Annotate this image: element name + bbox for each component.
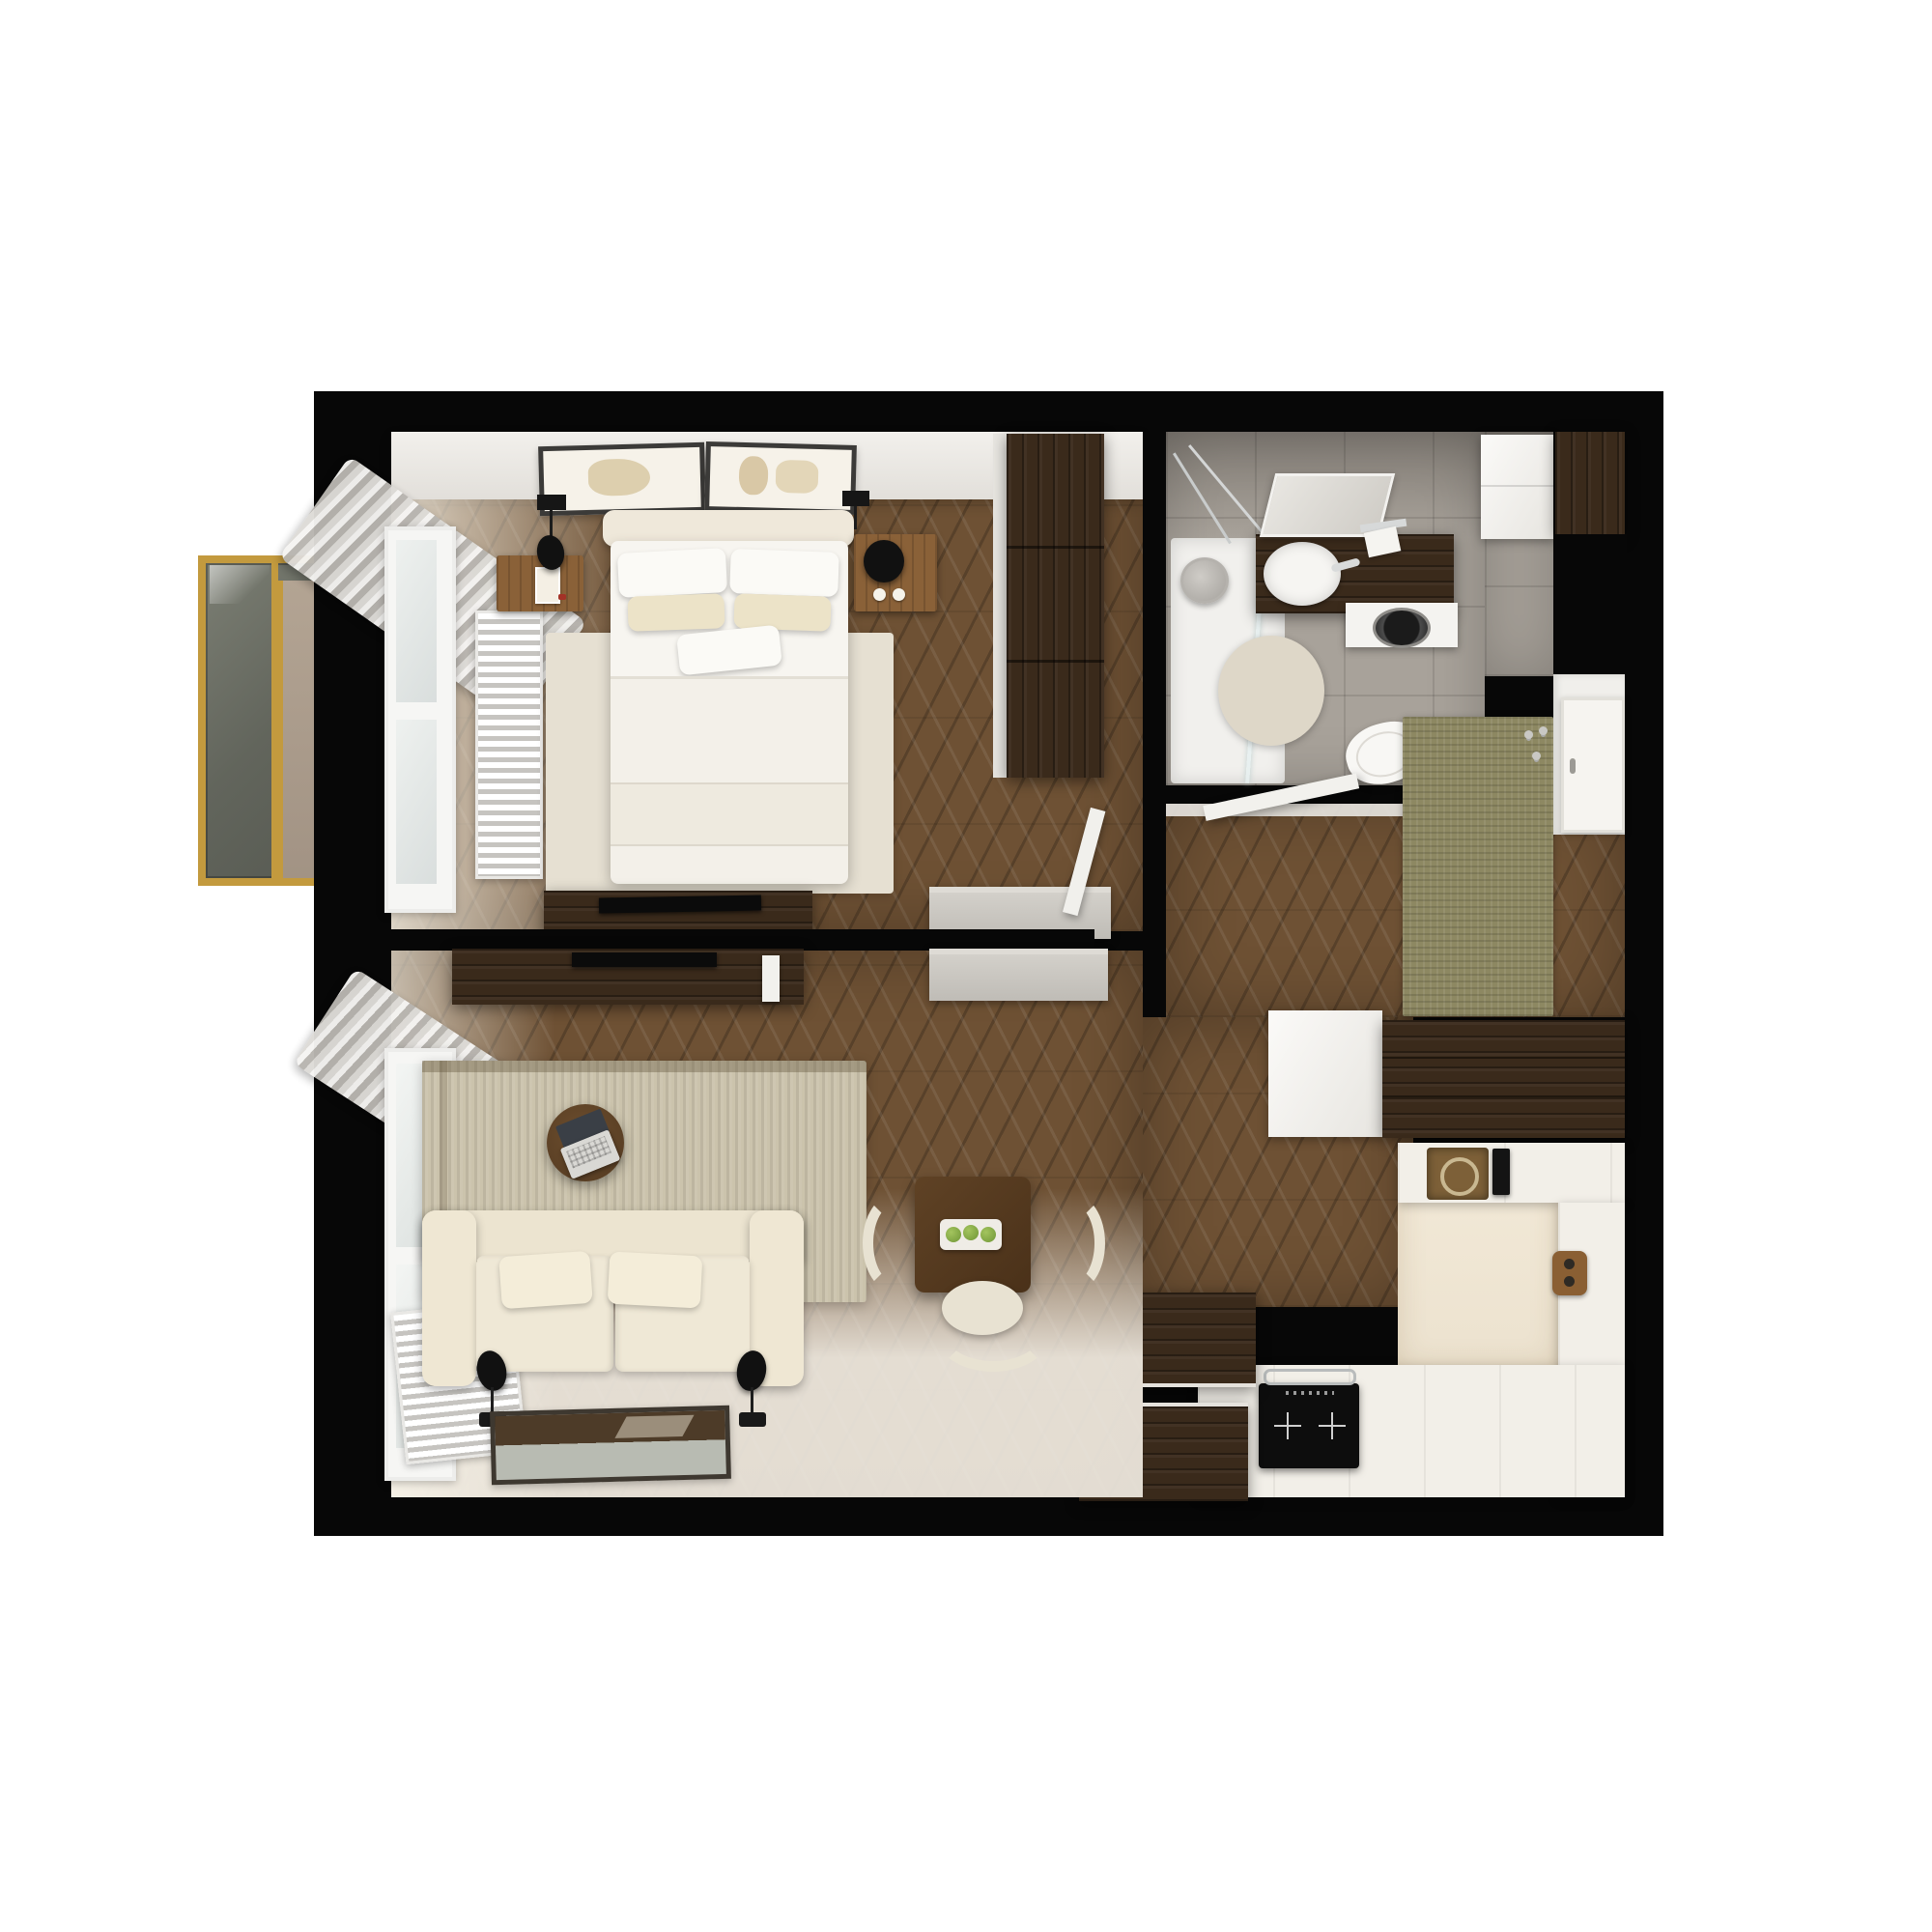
hob-control-dots xyxy=(1286,1391,1334,1395)
bathroom-round-rug xyxy=(1218,636,1324,746)
coat-hook xyxy=(1539,726,1548,735)
nightstand-red-object xyxy=(558,594,566,600)
cabinet-groove xyxy=(1382,1095,1625,1097)
hall-floor xyxy=(1166,804,1625,1017)
apple xyxy=(946,1227,961,1242)
kitchen-counter-bottom xyxy=(1198,1365,1625,1497)
dining-chair-left xyxy=(863,1194,926,1293)
bed-mattress xyxy=(611,541,848,881)
bedroom-radiator xyxy=(475,611,543,879)
media-device-white xyxy=(762,955,780,1002)
art-abstract-shape xyxy=(587,458,650,497)
bathroom-vanity-counter xyxy=(1256,534,1454,613)
cabinet-groove xyxy=(1382,1057,1625,1059)
kitchen-counter-top-run xyxy=(1398,1143,1625,1203)
bed-accent-pillow xyxy=(627,593,724,631)
dining-table xyxy=(915,1177,1031,1293)
board-knob xyxy=(1564,1276,1575,1287)
wall-art-frame-2 xyxy=(704,441,857,515)
living-tv-console xyxy=(452,949,804,1005)
bed-accent-pillow xyxy=(733,593,831,631)
steel-towel-rail xyxy=(1264,1369,1356,1385)
bathroom-cabinet-dark xyxy=(1555,432,1625,534)
front-door-handle xyxy=(1570,758,1576,774)
washer-drum xyxy=(1373,608,1431,648)
glazing-mullion xyxy=(271,563,278,878)
apple xyxy=(980,1227,996,1242)
coat-hook xyxy=(1524,730,1533,739)
hob-zone-cross xyxy=(1319,1412,1346,1439)
sconce-right-plate xyxy=(842,491,869,506)
bathroom-cabinet-white xyxy=(1481,435,1553,539)
kitchen-faucet-black xyxy=(1492,1149,1510,1195)
dining-chair-right xyxy=(1041,1194,1105,1293)
wall-bedroom-living xyxy=(391,929,1094,951)
bed-pillow xyxy=(617,548,727,598)
wall-vertical-core xyxy=(1143,432,1166,1017)
wardrobe-seam xyxy=(1007,660,1104,663)
bed-duvet-fold xyxy=(611,782,848,846)
cabinet-seam xyxy=(1481,485,1553,487)
mat-highlight xyxy=(614,1415,694,1438)
glazing-side-pane xyxy=(278,581,319,878)
entry-green-rug xyxy=(1403,717,1553,1016)
bed-duvet xyxy=(611,676,848,884)
rug-edge-band xyxy=(422,1061,867,1072)
bedroom-media-bench xyxy=(544,891,812,933)
sconce-left-plate xyxy=(537,495,566,510)
hob-zone-cross xyxy=(1274,1412,1301,1439)
floor-plan-canvas xyxy=(0,0,1932,1932)
living-sideboard xyxy=(929,949,1108,1001)
kitchen-cutting-board xyxy=(1552,1251,1587,1295)
nightstand-left xyxy=(497,555,583,611)
coat-hook xyxy=(1532,752,1541,760)
washing-machine xyxy=(1346,603,1458,647)
sofa-pillow xyxy=(498,1251,593,1309)
wall-infill-right xyxy=(1553,534,1627,676)
bedroom-tv xyxy=(599,895,761,914)
wardrobe-side-panel xyxy=(993,434,1007,778)
board-knob xyxy=(1564,1259,1575,1269)
bedroom-wardrobe xyxy=(1007,434,1104,778)
bed-center-pillow xyxy=(676,625,782,676)
living-tv xyxy=(572,952,717,967)
art-abstract-shape xyxy=(739,456,769,496)
floor-artwork-mat xyxy=(490,1406,731,1485)
dining-chair-bottom-back xyxy=(935,1294,1051,1372)
hall-dark-cabinet xyxy=(1382,1020,1625,1138)
bedroom-window xyxy=(384,526,456,913)
nightstand-art-card xyxy=(535,567,560,604)
nightstand-knob xyxy=(893,588,905,601)
sofa-pillow xyxy=(608,1252,703,1309)
nightstand-knob xyxy=(873,588,886,601)
art-abstract-shape xyxy=(776,460,819,494)
sofa-arm-left xyxy=(422,1210,476,1386)
floor-lamp-right-base xyxy=(739,1412,766,1427)
nightstand-lamp-shade xyxy=(864,540,904,582)
hall-gloss-cabinet xyxy=(1268,1010,1382,1137)
wardrobe-seam xyxy=(1007,546,1104,549)
induction-hob xyxy=(1259,1383,1359,1468)
window-glass xyxy=(396,540,437,702)
front-door xyxy=(1561,697,1625,833)
shower-head xyxy=(1180,557,1229,604)
balcony-gold-glazing xyxy=(198,555,322,886)
bed-pillow xyxy=(729,549,839,597)
glazing-highlight xyxy=(210,565,270,604)
apple xyxy=(963,1225,979,1240)
vanity-basin xyxy=(1264,542,1341,606)
sconce-right-stem xyxy=(854,506,857,529)
window-glass xyxy=(396,720,437,884)
sink-bowl-ring xyxy=(1440,1157,1479,1196)
kitchen-sink xyxy=(1427,1148,1489,1200)
nightstand-right xyxy=(854,534,937,611)
